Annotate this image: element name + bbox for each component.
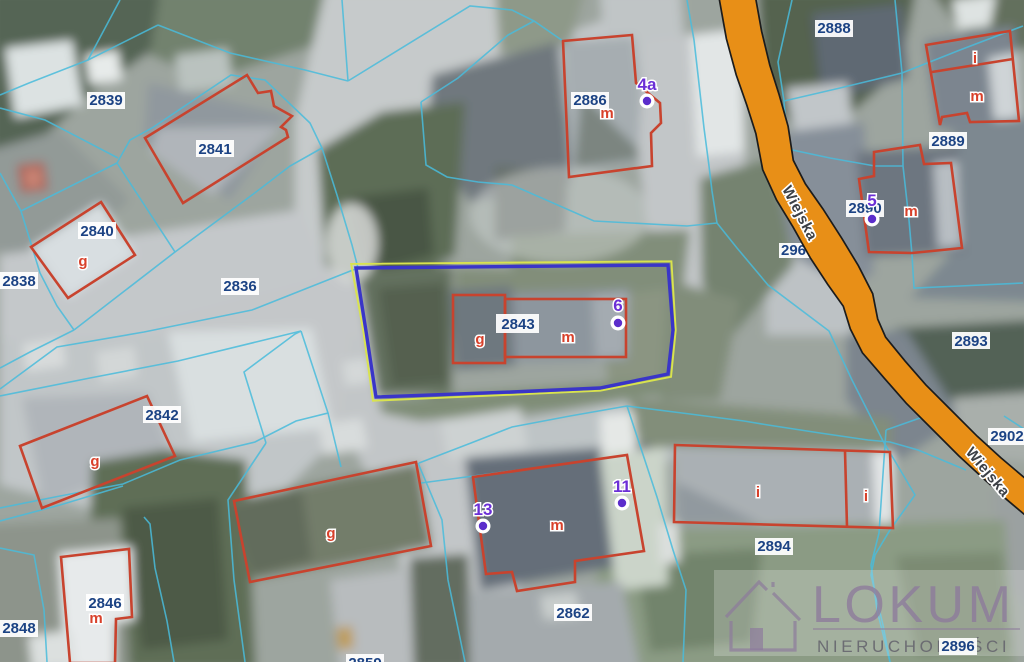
svg-text:i: i bbox=[973, 50, 977, 67]
svg-text:2859: 2859 bbox=[348, 655, 381, 662]
svg-text:m: m bbox=[970, 88, 983, 105]
svg-text:m: m bbox=[561, 329, 574, 346]
svg-text:2896: 2896 bbox=[941, 638, 974, 655]
svg-text:g: g bbox=[475, 331, 484, 348]
svg-text:2843: 2843 bbox=[501, 316, 534, 333]
svg-text:g: g bbox=[326, 525, 335, 542]
svg-text:2836: 2836 bbox=[223, 278, 256, 295]
svg-text:NIERUCHOMOŚCI: NIERUCHOMOŚCI bbox=[817, 637, 1010, 656]
svg-text:m: m bbox=[550, 517, 563, 534]
svg-text:m: m bbox=[904, 203, 917, 220]
svg-text:LOKUM: LOKUM bbox=[812, 576, 1014, 634]
svg-text:m: m bbox=[89, 610, 102, 627]
svg-text:2862: 2862 bbox=[556, 605, 589, 622]
svg-text:2888: 2888 bbox=[817, 20, 850, 37]
svg-text:2842: 2842 bbox=[145, 407, 178, 424]
svg-text:m: m bbox=[600, 105, 613, 122]
svg-text:2848: 2848 bbox=[2, 620, 35, 637]
svg-text:2840: 2840 bbox=[80, 223, 113, 240]
svg-text:2839: 2839 bbox=[89, 92, 122, 109]
svg-text:6: 6 bbox=[613, 296, 622, 315]
svg-text:4a: 4a bbox=[638, 75, 657, 94]
svg-text:i: i bbox=[864, 488, 868, 505]
svg-text:2889: 2889 bbox=[931, 133, 964, 150]
svg-text:5: 5 bbox=[867, 191, 876, 210]
svg-text:g: g bbox=[78, 253, 87, 270]
svg-text:2894: 2894 bbox=[757, 538, 791, 555]
svg-text:11: 11 bbox=[613, 477, 631, 496]
svg-text:2838: 2838 bbox=[2, 273, 35, 290]
svg-text:2902: 2902 bbox=[990, 428, 1023, 445]
svg-text:g: g bbox=[90, 453, 99, 470]
svg-text:i: i bbox=[756, 484, 760, 501]
svg-text:13: 13 bbox=[474, 500, 493, 519]
svg-text:2841: 2841 bbox=[198, 141, 231, 158]
svg-text:2893: 2893 bbox=[954, 333, 987, 350]
